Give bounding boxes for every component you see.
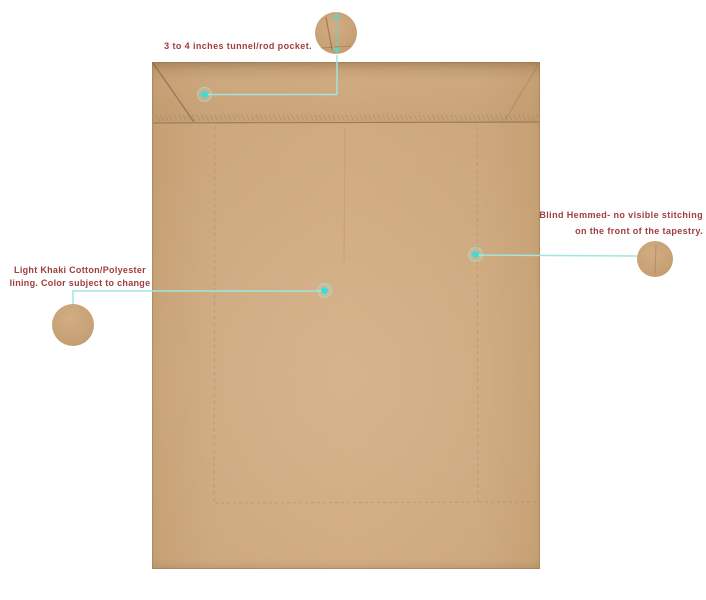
blind-hem-label-line1: Blind Hemmed- no visible stitching <box>473 207 703 223</box>
blind-hem-label: Blind Hemmed- no visible stitching on th… <box>473 207 703 239</box>
product-annotation-figure: 3 to 4 inches tunnel/rod pocket. Blind H… <box>0 0 706 600</box>
rod-pocket-detail-inset <box>315 12 357 54</box>
hotspot-lining[interactable] <box>317 283 332 298</box>
lining-label-line1: Light Khaki Cotton/Polyester <box>2 264 158 277</box>
rod-pocket-label: 3 to 4 inches tunnel/rod pocket. <box>150 41 312 51</box>
lining-detail-inset <box>52 304 94 346</box>
hotspot-blind-hem[interactable] <box>468 247 483 262</box>
lining-label: Light Khaki Cotton/Polyester lining. Col… <box>2 264 158 290</box>
hotspot-rod-pocket[interactable] <box>197 87 212 102</box>
tapestry-image <box>152 62 540 569</box>
lining-label-line2: lining. Color subject to change <box>2 277 158 290</box>
rod-pocket-label-text: 3 to 4 inches tunnel/rod pocket. <box>164 41 312 51</box>
blind-hem-detail-inset <box>637 241 673 277</box>
pocket-stitch-texture <box>154 115 538 121</box>
blind-hem-label-line2: on the front of the tapestry. <box>473 223 703 239</box>
